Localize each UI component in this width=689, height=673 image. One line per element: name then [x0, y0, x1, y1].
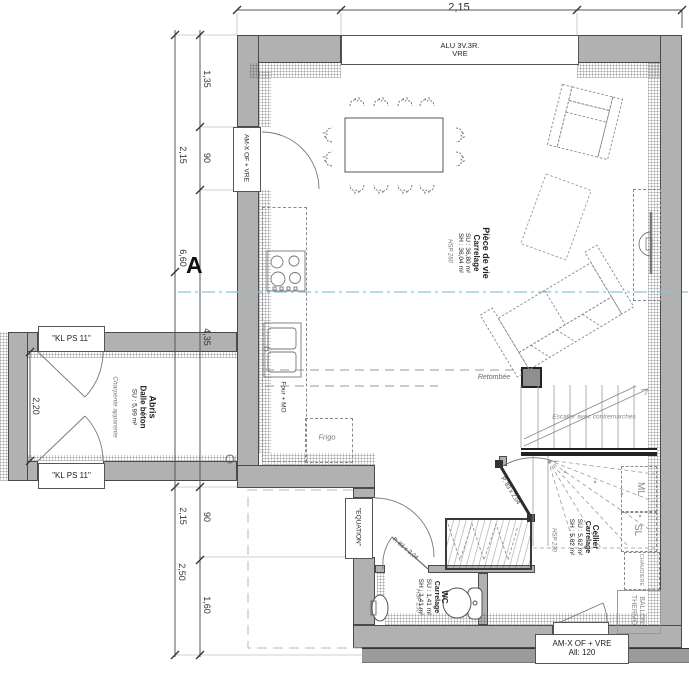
room-cellier-label: Cellier Carrelage SU : 5,62 m² SH : 5,62…: [568, 519, 600, 555]
room-wc-label: WC Carrelage SU : 1,41 m² SH : 1,41 m²: [417, 579, 449, 615]
circle-marker: [226, 455, 234, 463]
room-living-floor: Carrelage: [472, 227, 481, 279]
room-living-sh: SH : 36,04 m²: [457, 227, 464, 279]
abris-bottom-door-leaf: [38, 416, 85, 461]
abris-bottom-door-arc: [85, 416, 103, 461]
window-bottom-label2: All: 120: [569, 649, 596, 658]
room-living-hsp: HSP 260: [446, 239, 453, 263]
room-cellier-floor: Carrelage: [583, 519, 591, 555]
abris-top-door-leaf: [38, 352, 85, 397]
room-cellier-su: SU : 5,62 m²: [575, 519, 582, 555]
oven-label: Four + MO: [279, 381, 286, 412]
door-abris-top: "KL PS 11": [38, 326, 105, 352]
cellier-door-jamb: [495, 460, 503, 468]
room-wc-hsp: HSP 250: [414, 589, 421, 613]
dim-top: 2,15: [448, 2, 469, 15]
dim-inner-2: 90: [202, 153, 212, 163]
room-abris-name: Abris: [147, 385, 157, 428]
boiler-label: CHAUDIERE: [638, 554, 644, 586]
room-living-su: SU : 36,80 m²: [464, 227, 471, 279]
room-abris-su: SU : 5,99 m²: [131, 385, 138, 428]
extension-lines: [175, 13, 577, 655]
window-bottom-labelbox: AM-X OF + VRE All: 120: [535, 634, 629, 664]
cellier-door-hinge: [527, 514, 535, 522]
window-top-label2: VRE: [452, 50, 467, 58]
room-wc-su: SU : 1,41 m²: [424, 579, 431, 615]
dining-table-group: [324, 98, 464, 193]
dim-outer-3: 2,15: [178, 507, 188, 525]
fridge-label: Frigo: [318, 434, 335, 443]
dimension-lines: [26, 6, 686, 659]
abris-top-door-arc: [85, 352, 103, 397]
dining-table: [345, 118, 443, 172]
retombee-label: Retombée: [478, 374, 510, 382]
room-cellier-name: Cellier: [591, 519, 600, 555]
room-wc-floor: Carrelage: [432, 579, 440, 615]
hand-basin: [372, 595, 388, 621]
door-abris-bottom: "KL PS 11": [38, 463, 105, 489]
window-left-label: AM-X OF + VRE: [242, 134, 249, 182]
dim-abris: 2,20: [31, 397, 41, 415]
coffee-table: [521, 174, 591, 260]
closet-shelf-zigzag: [448, 524, 518, 560]
dim-outer-1: 2,15: [178, 146, 188, 164]
door-abris-top-label: "KL PS 11": [52, 335, 91, 344]
wc-door-arc: [383, 537, 392, 569]
left-window-arc: [262, 132, 319, 189]
dryer-label: SL: [631, 524, 643, 536]
room-living-name: Pièce de vie: [481, 227, 491, 279]
dimension-ticks: [26, 6, 686, 659]
water-heater-label-1: BALLON: [637, 595, 645, 625]
tv-cabinet: [633, 189, 661, 301]
kitchen-counter: [262, 207, 307, 462]
bottom-window-casement: [556, 603, 607, 624]
dim-inner-5: 1,60: [202, 596, 212, 614]
water-heater-label-2: THERMO: [629, 595, 637, 625]
room-cellier-hsp: HSP 230: [550, 528, 557, 552]
room-abris-label: Abris Dalle béton SU : 5,99 m²: [131, 385, 158, 428]
room-abris-floor: Dalle béton: [138, 385, 147, 428]
dim-inner-1: 1,35: [202, 70, 212, 88]
dim-outer-4: 2,50: [177, 563, 187, 581]
room-wc-name: WC: [440, 579, 449, 615]
door-abris-bottom-label: "KL PS 11": [52, 472, 91, 481]
washer-label: ML: [634, 482, 646, 496]
room-living-label: Pièce de vie Carrelage SU : 36,80 m² SH …: [457, 227, 491, 279]
room-cellier-sh: SH : 5,62 m²: [568, 519, 575, 555]
room-abris-note: Charpente apparente: [111, 376, 118, 437]
stairs-label: Escalier avec contremarches: [552, 413, 635, 420]
sofa: [480, 245, 634, 377]
water-heater-label: BALLON THERMO: [629, 595, 645, 625]
window-top: ALU 3V.3R. VRE: [341, 35, 579, 65]
door-entry-label: "EQUATION": [354, 508, 361, 546]
armchair: [547, 84, 622, 159]
dim-inner-3: 4,35: [202, 328, 212, 346]
dim-inner-4: 90: [202, 512, 212, 522]
section-marker-a: A: [186, 252, 203, 279]
floor-plan: ALU 3V.3R. VRE AM-X OF + VRE AM-X OF + V…: [0, 0, 689, 673]
cellier-door-leaf: [501, 467, 532, 519]
